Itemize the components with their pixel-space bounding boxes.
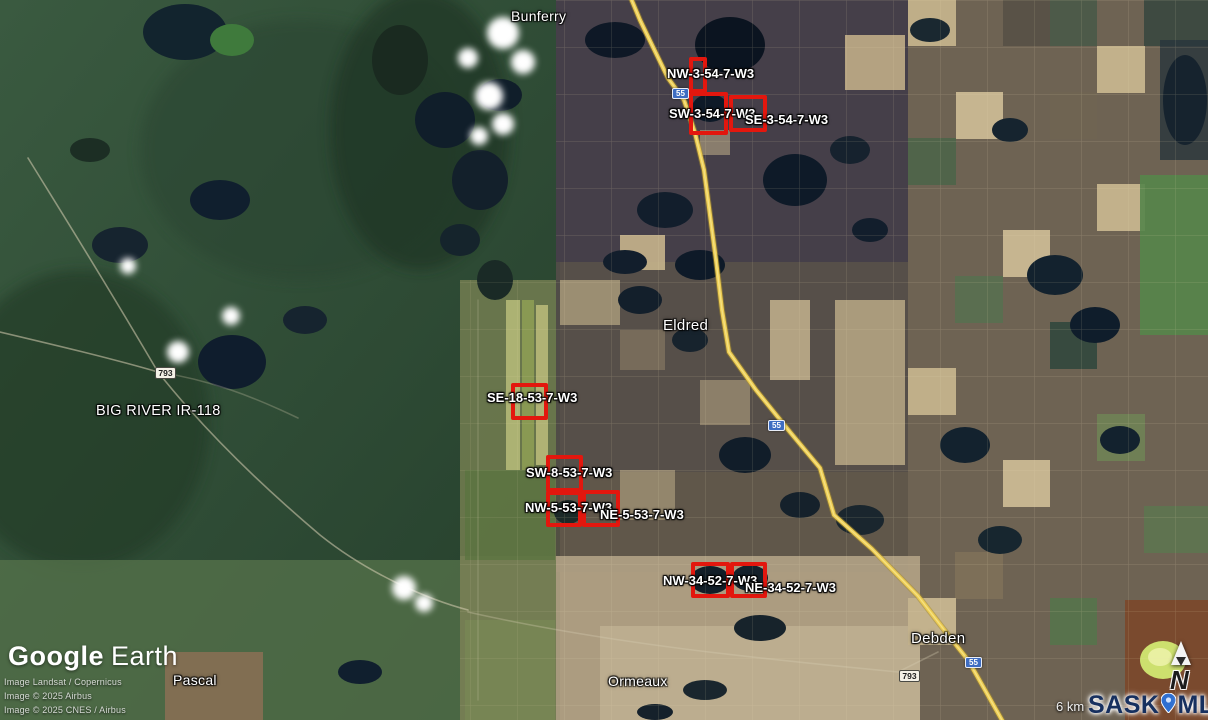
compass-n-label: N: [1170, 665, 1189, 696]
copyright-line: Image © 2025 CNES / Airbus: [4, 705, 126, 715]
place-label-debden: Debden: [911, 630, 965, 647]
section-grid: [460, 0, 1208, 720]
scale-label: 6 km: [1056, 699, 1084, 714]
copyright-line: Image © 2025 Airbus: [4, 691, 92, 701]
google-earth-logo-google: Google: [8, 641, 104, 671]
place-label-eldred: Eldred: [663, 317, 708, 334]
highway-55-shield: 55: [768, 420, 785, 431]
parcel-label[interactable]: NE-34-52-7-W3: [745, 580, 836, 595]
parcel-label[interactable]: NW-34-52-7-W3: [663, 573, 757, 588]
parcel-label[interactable]: NW-3-54-7-W3: [667, 66, 754, 81]
parcel-label[interactable]: SE-18-53-7-W3: [487, 390, 577, 405]
highway-793-shield: 793: [155, 367, 176, 379]
satellite-imagery: [0, 0, 1208, 720]
place-label-big-river-ir-118: BIG RIVER IR-118: [96, 403, 221, 419]
google-earth-logo-earth: Earth: [111, 641, 178, 671]
sask-mls-prefix: SASK: [1088, 691, 1159, 720]
parcel-label[interactable]: NE-5-53-7-W3: [600, 507, 684, 522]
google-earth-logo: GoogleEarth: [8, 641, 178, 672]
place-label-pascal: Pascal: [173, 672, 217, 688]
place-label-ormeaux: Ormeaux: [608, 673, 668, 689]
place-label-bunferry: Bunferry: [511, 8, 566, 24]
highway-793-shield: 793: [899, 670, 920, 682]
compass-north-control[interactable]: N: [1164, 641, 1198, 703]
highway-55-shield: 55: [965, 657, 982, 668]
parcel-label[interactable]: SE-3-54-7-W3: [745, 112, 828, 127]
parcel-label[interactable]: SW-3-54-7-W3: [669, 106, 755, 121]
highway-55-shield: 55: [672, 88, 689, 99]
copyright-line: Image Landsat / Copernicus: [4, 677, 122, 687]
parcel-label[interactable]: SW-8-53-7-W3: [526, 465, 612, 480]
google-earth-map-view[interactable]: Bunferry Eldred BIG RIVER IR-118 Debden …: [0, 0, 1208, 720]
